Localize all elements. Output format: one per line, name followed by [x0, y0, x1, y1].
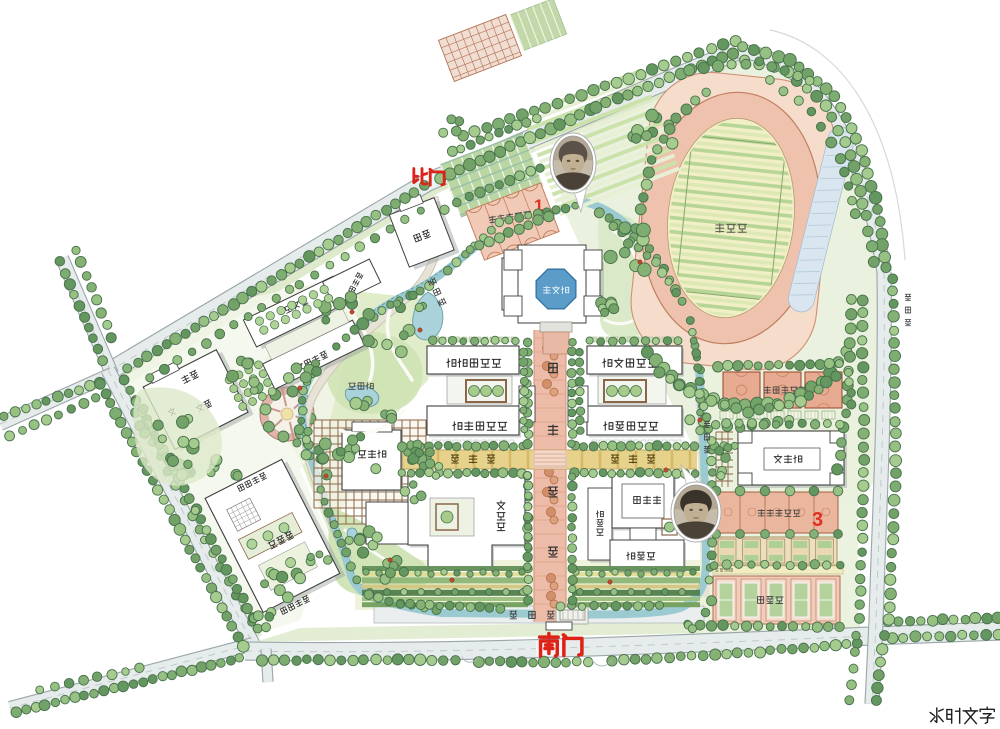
svg-text:3: 3: [812, 509, 823, 531]
